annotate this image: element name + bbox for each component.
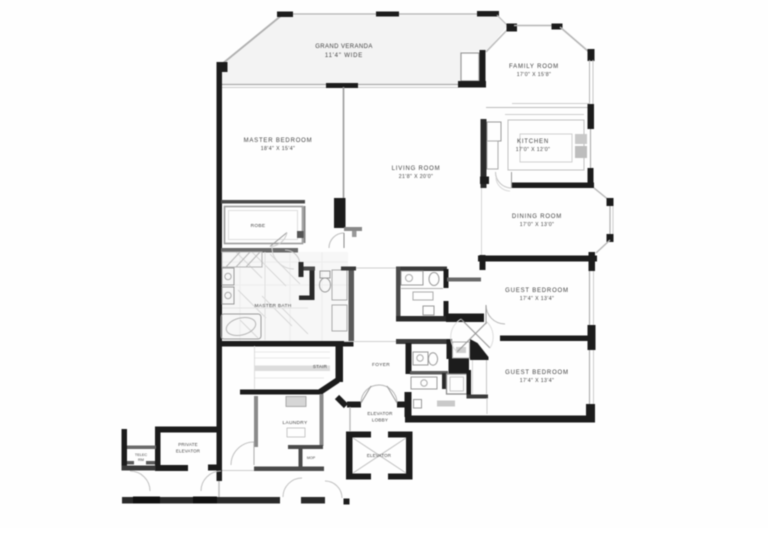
svg-text:LOBBY: LOBBY: [372, 418, 388, 423]
svg-text:ROBE: ROBE: [251, 223, 266, 229]
svg-text:17'4" X 13'4": 17'4" X 13'4": [520, 296, 555, 302]
svg-text:18'4" X 15'4": 18'4" X 15'4": [261, 146, 296, 152]
svg-text:RM: RM: [138, 458, 144, 462]
svg-text:FAMILY ROOM: FAMILY ROOM: [509, 64, 559, 70]
svg-text:KITCHEN: KITCHEN: [517, 139, 549, 145]
svg-text:21'8" X 20'0": 21'8" X 20'0": [399, 174, 434, 180]
svg-text:MASTER BATH: MASTER BATH: [254, 303, 291, 309]
svg-text:MOP: MOP: [307, 456, 316, 460]
svg-text:MASTER BEDROOM: MASTER BEDROOM: [244, 138, 313, 144]
svg-text:ELEVATOR: ELEVATOR: [367, 453, 391, 458]
svg-text:GUEST BEDROOM: GUEST BEDROOM: [505, 370, 569, 376]
svg-text:ELEVATOR: ELEVATOR: [176, 449, 200, 454]
svg-text:11'4" WIDE: 11'4" WIDE: [325, 53, 363, 59]
svg-text:17'0" X 13'0": 17'0" X 13'0": [520, 222, 555, 228]
svg-text:17'4" X 13'4": 17'4" X 13'4": [520, 378, 555, 384]
svg-text:TELEC: TELEC: [135, 453, 147, 457]
svg-text:17'0" X 15'8": 17'0" X 15'8": [517, 72, 552, 78]
svg-text:17'0" X 12'0": 17'0" X 12'0": [516, 147, 551, 153]
svg-text:LIVING ROOM: LIVING ROOM: [392, 166, 441, 172]
svg-text:STAIR: STAIR: [313, 364, 328, 369]
svg-text:GUEST BEDROOM: GUEST BEDROOM: [505, 288, 569, 294]
svg-text:DINING ROOM: DINING ROOM: [512, 214, 562, 220]
svg-text:PRIVATE: PRIVATE: [178, 442, 198, 447]
svg-text:LAUNDRY: LAUNDRY: [283, 420, 308, 426]
svg-text:FOYER: FOYER: [372, 362, 390, 368]
svg-text:ELEVATOR: ELEVATOR: [367, 411, 393, 416]
svg-text:GRAND VERANDA: GRAND VERANDA: [315, 44, 373, 50]
